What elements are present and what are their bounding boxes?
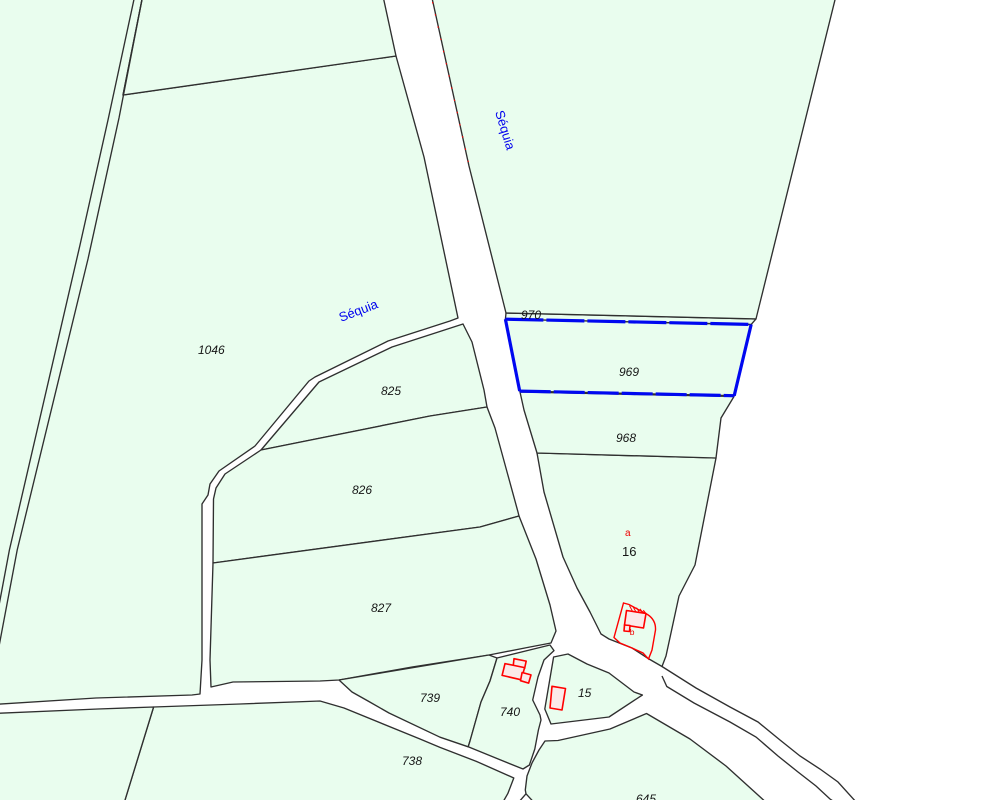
svg-text:827: 827 <box>371 601 392 615</box>
svg-text:738: 738 <box>402 754 422 768</box>
svg-text:645: 645 <box>636 792 656 800</box>
svg-text:1046: 1046 <box>198 343 225 357</box>
svg-text:16: 16 <box>622 544 636 559</box>
svg-text:969: 969 <box>619 365 639 379</box>
svg-text:970: 970 <box>521 308 541 322</box>
svg-text:b: b <box>630 627 635 637</box>
svg-text:740: 740 <box>500 705 520 719</box>
svg-text:968: 968 <box>616 431 636 445</box>
svg-text:826: 826 <box>352 483 372 497</box>
svg-text:15: 15 <box>578 686 592 700</box>
svg-text:739: 739 <box>420 691 440 705</box>
svg-text:a: a <box>625 528 631 539</box>
svg-text:825: 825 <box>381 384 401 398</box>
